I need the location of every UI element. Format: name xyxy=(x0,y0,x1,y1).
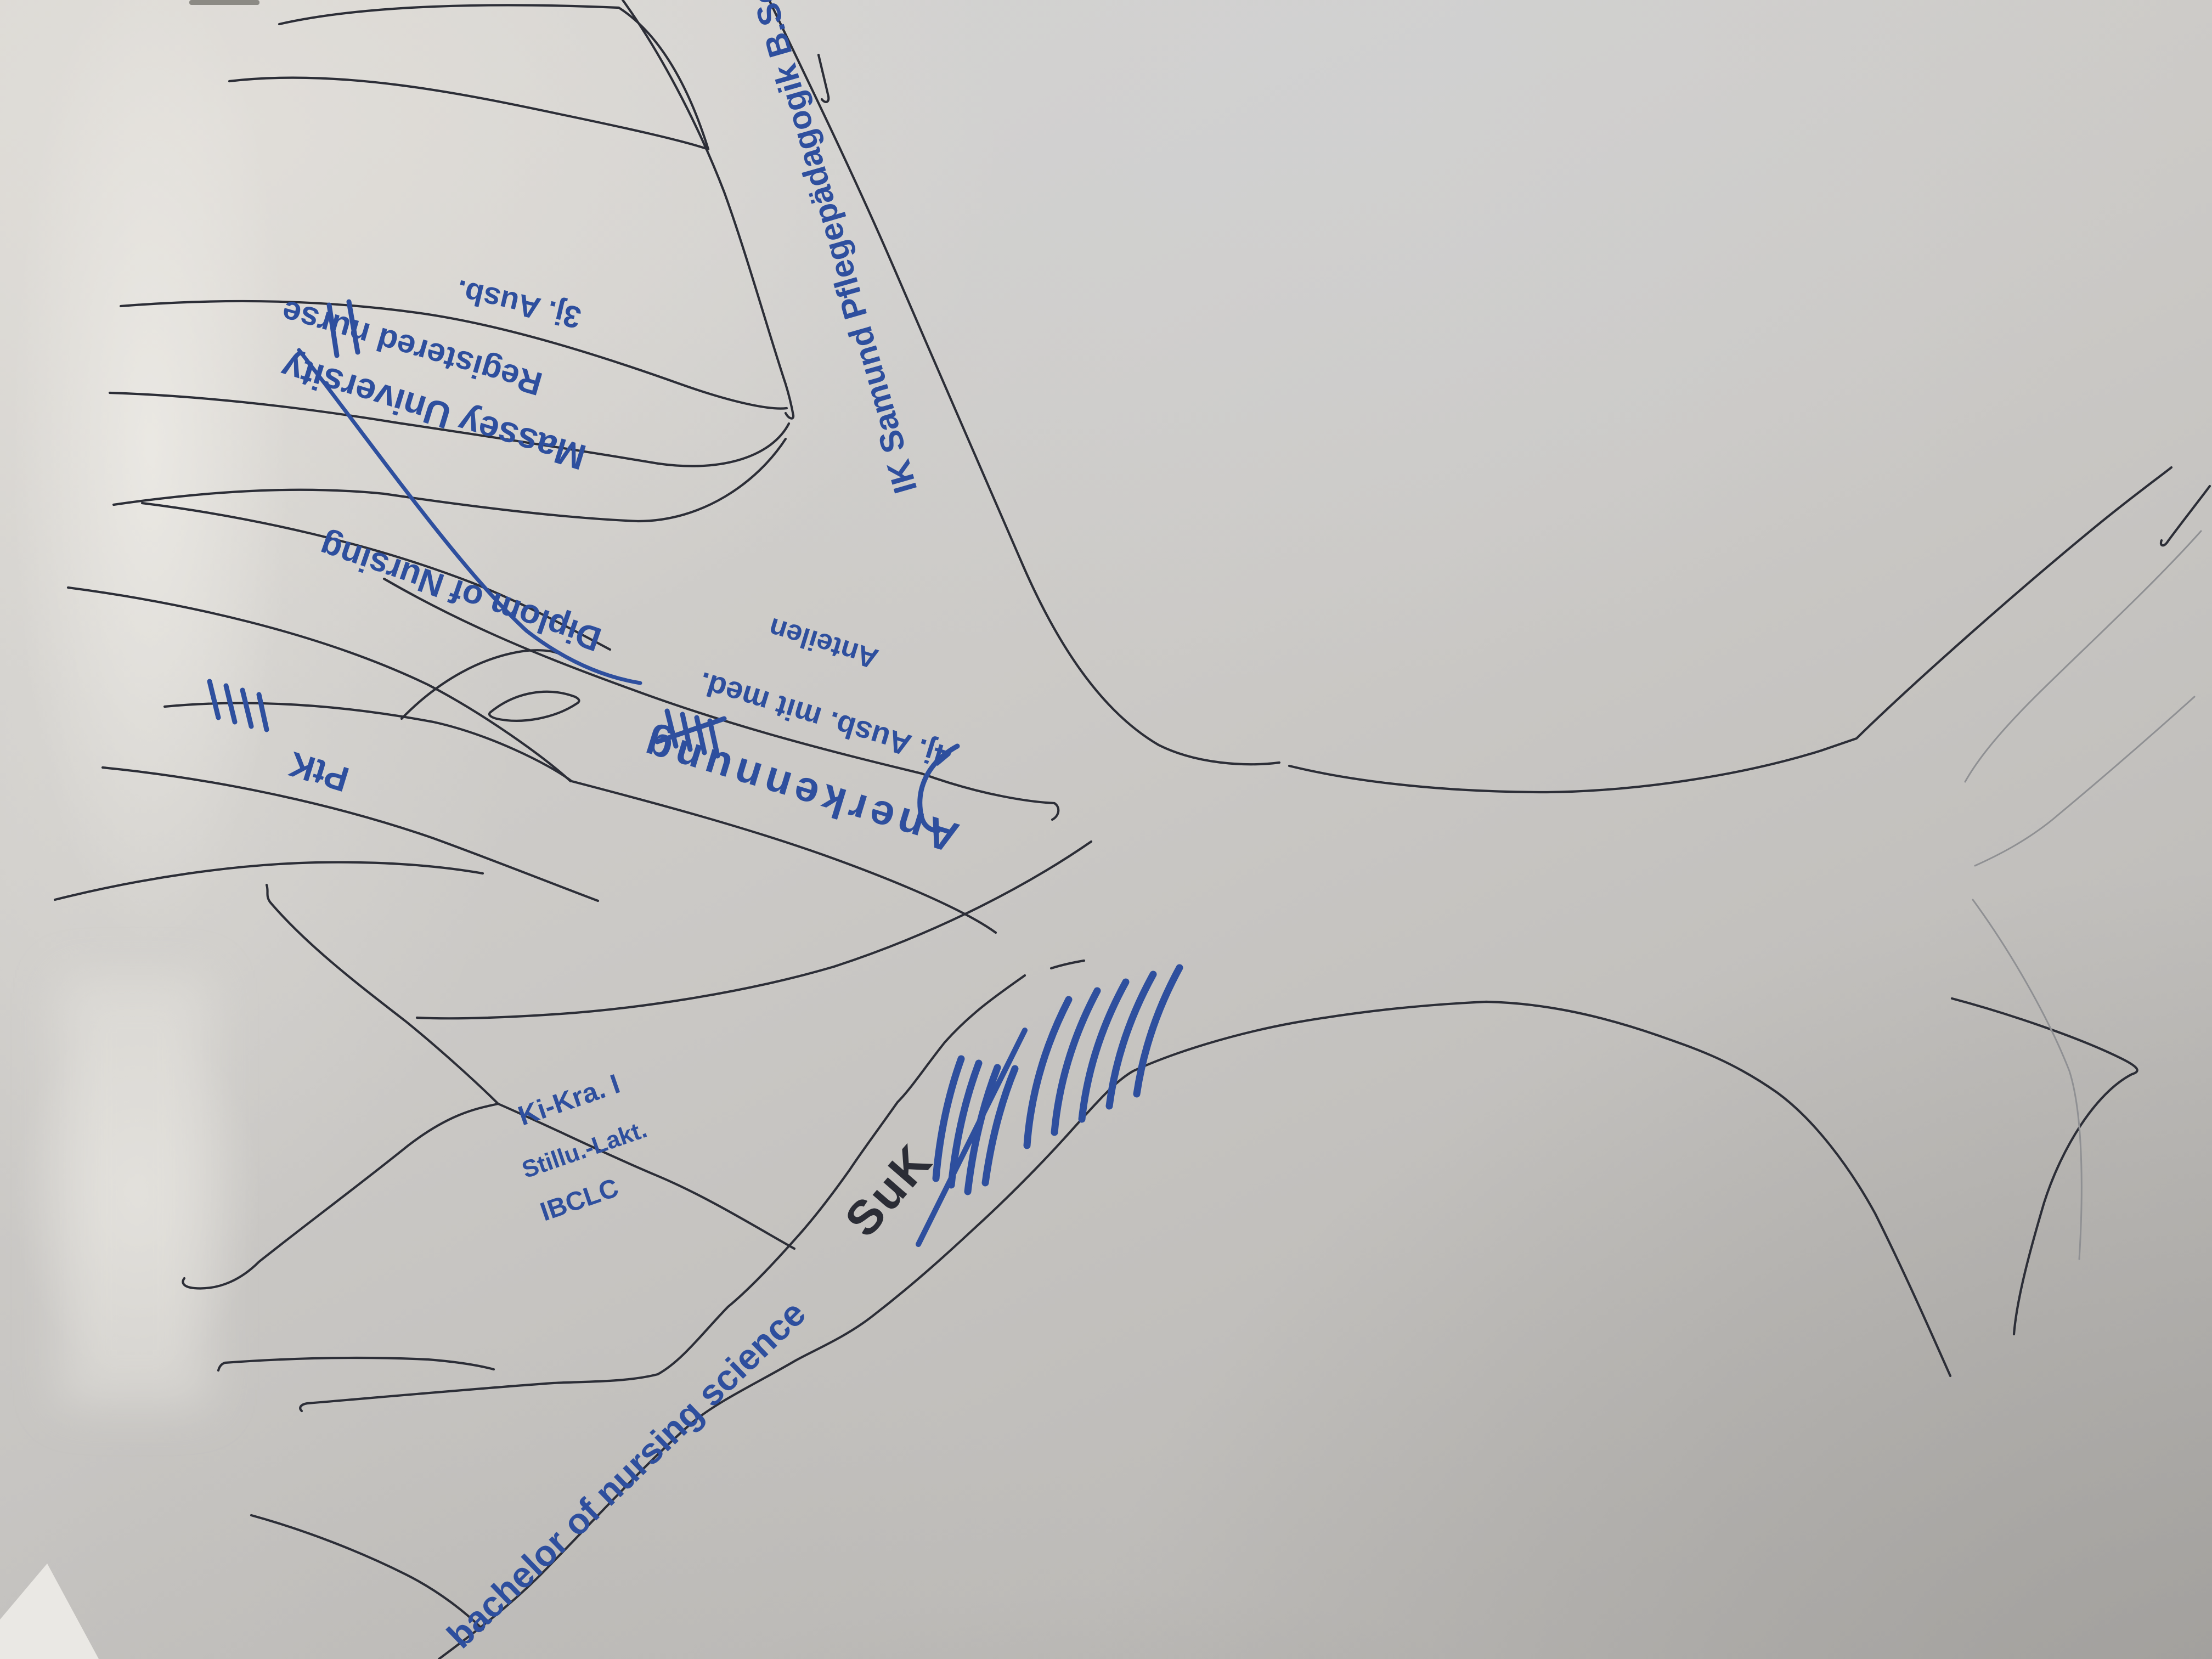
svg-text:Anteilen: Anteilen xyxy=(765,612,882,675)
svg-text:Diplom of Nursing: Diplom of Nursing xyxy=(315,527,606,658)
svg-text:Ki-Kra. I: Ki-Kra. I xyxy=(514,1068,623,1131)
svg-text:PtK: PtK xyxy=(284,744,353,799)
svg-text:IK Samund Pflegepädagogik B.Sc: IK Samund Pflegepädagogik B.Sc. xyxy=(741,0,924,498)
svg-text:bachelor of nursing science: bachelor of nursing science xyxy=(439,1293,813,1656)
svg-text:IBCLC: IBCLC xyxy=(537,1173,622,1227)
svg-text:3j. Ausb.: 3j. Ausb. xyxy=(453,273,584,335)
